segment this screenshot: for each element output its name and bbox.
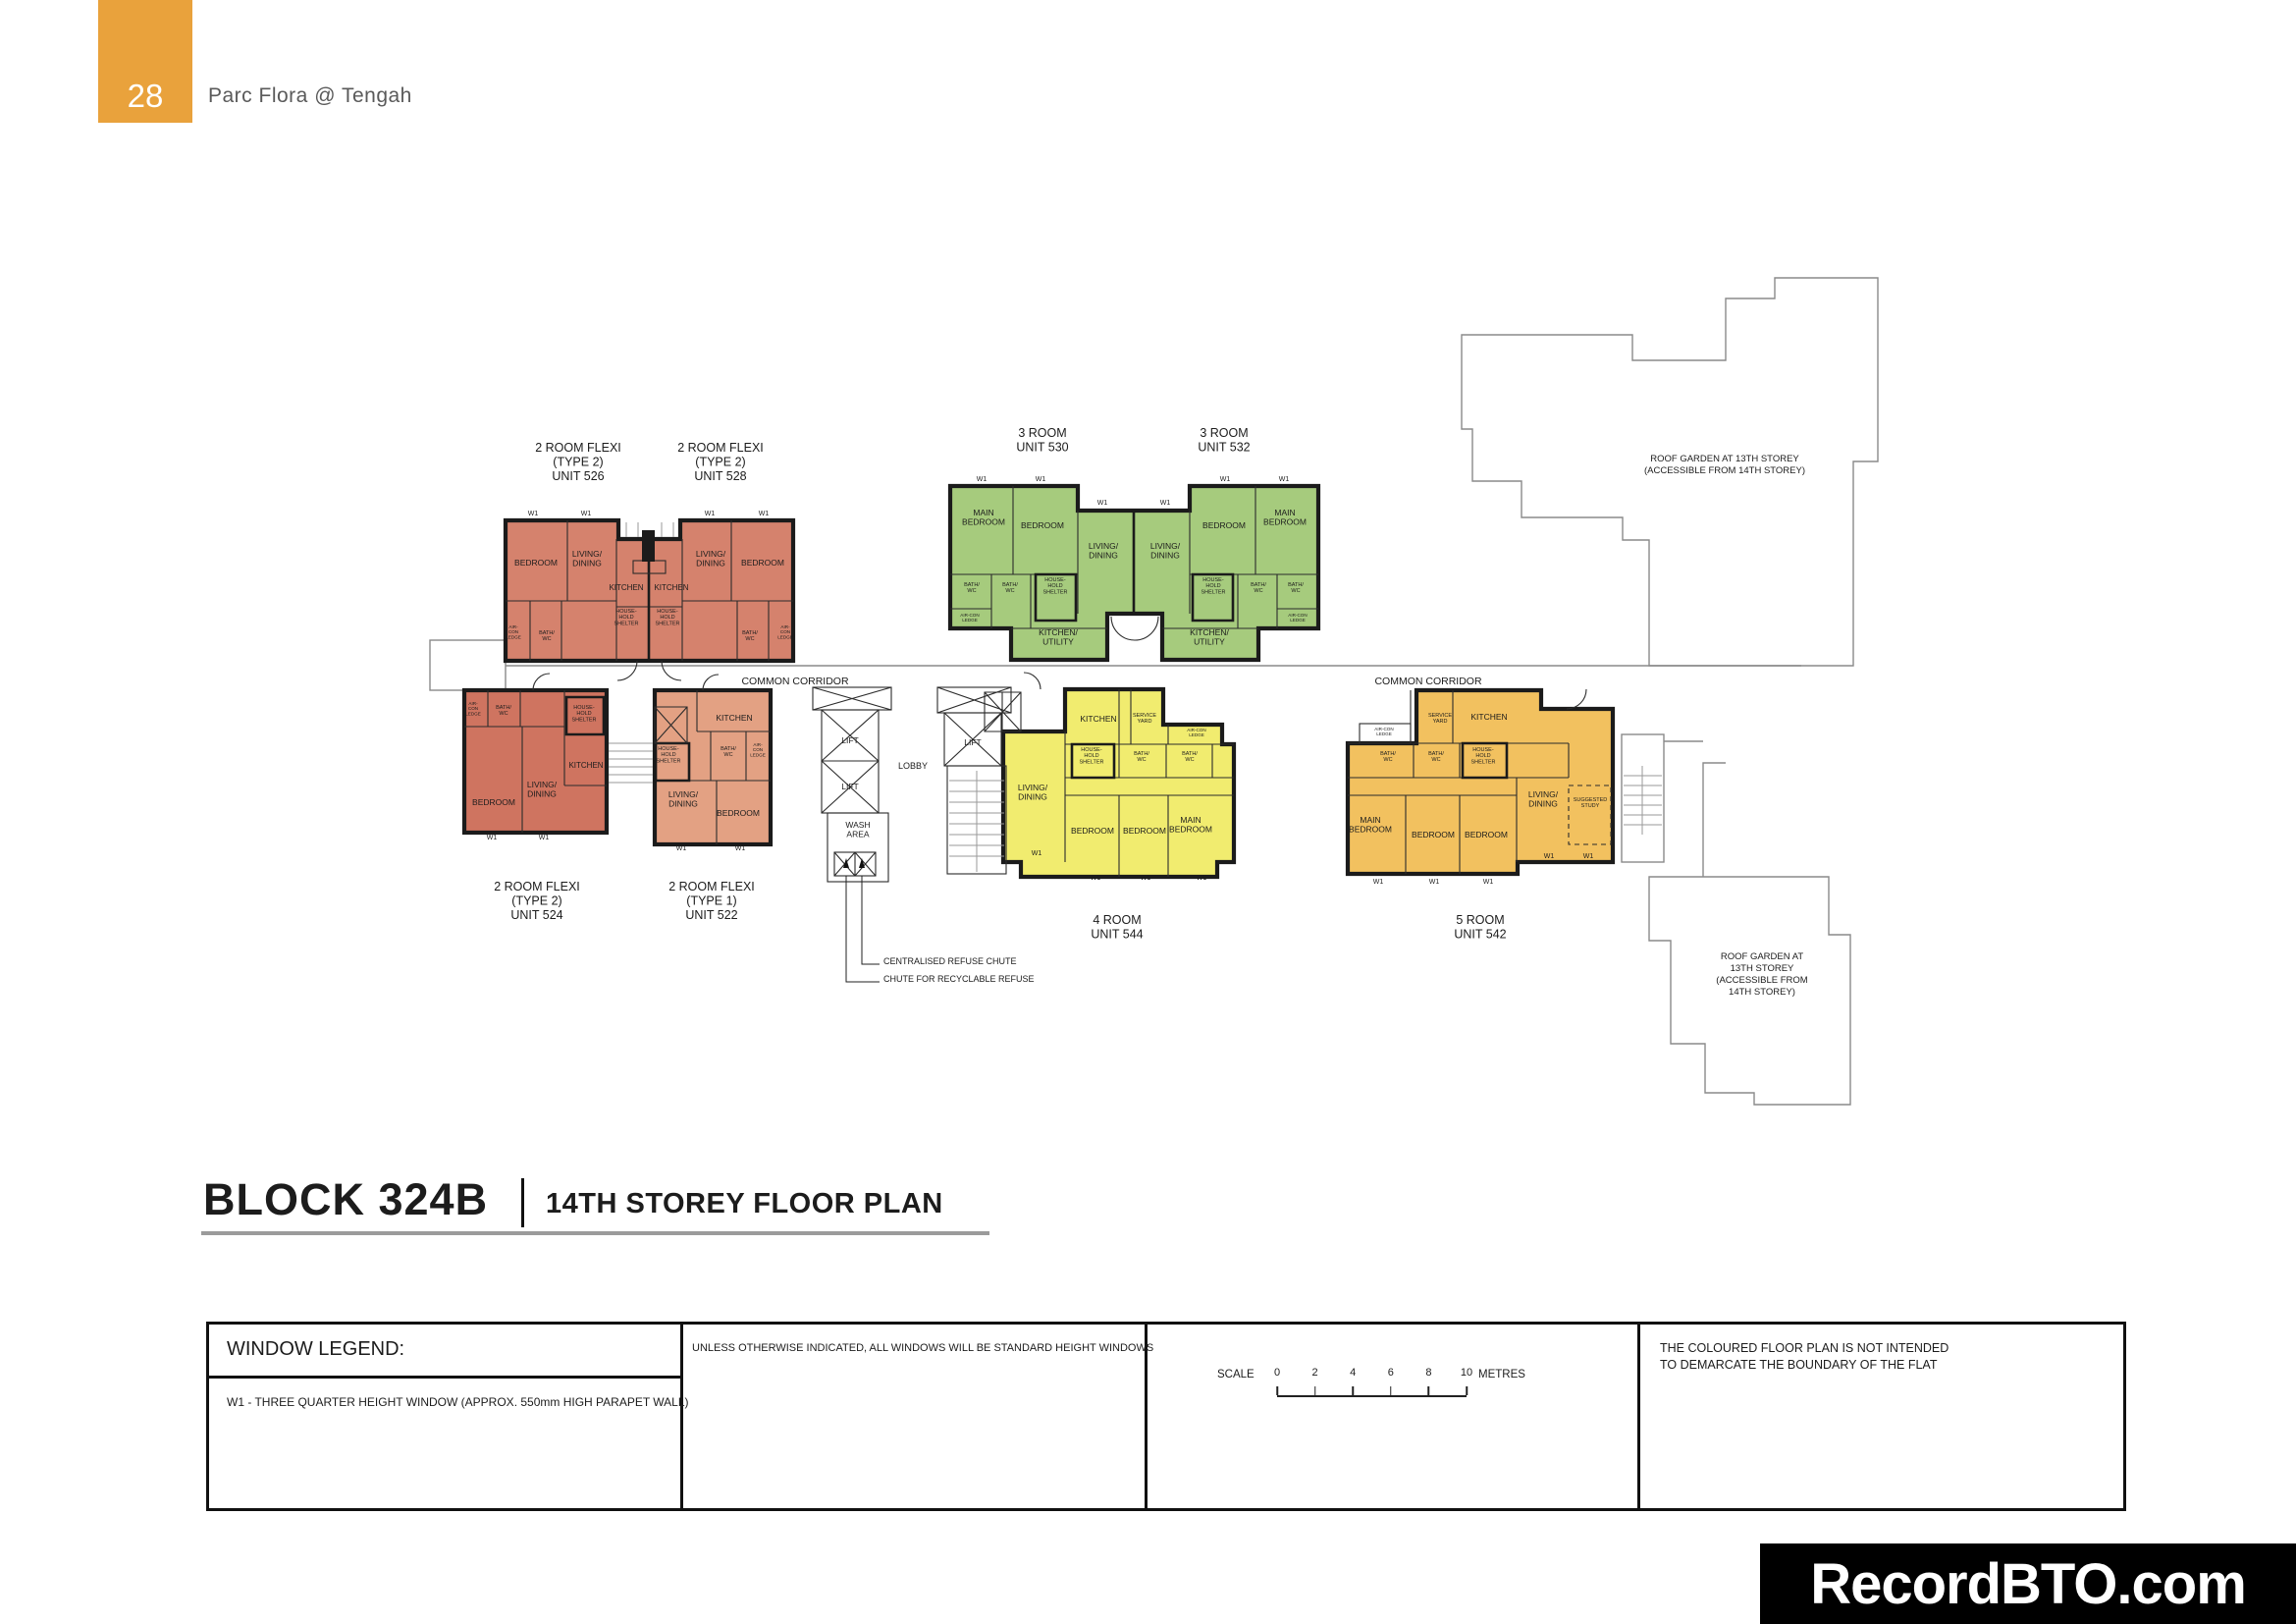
room-label: LIVING/DINING: [1528, 789, 1559, 809]
page-number: 28: [128, 78, 164, 123]
recordbto-logo-text: RecordBTO.com: [1810, 1551, 2246, 1617]
w1-note: W1 - THREE QUARTER HEIGHT WINDOW (APPROX…: [227, 1395, 689, 1409]
window-marker: W1: [1220, 476, 1231, 483]
unit-title: 2 ROOM FLEXI(TYPE 1)UNIT 522: [668, 880, 755, 922]
lift-label: LIFT: [841, 735, 858, 745]
scale-tick-label: 6: [1388, 1367, 1394, 1379]
room-label: KITCHEN: [568, 761, 603, 770]
recordbto-logo[interactable]: RecordBTO.com: [1760, 1543, 2296, 1624]
scale-tick-mark: [1314, 1386, 1316, 1395]
room-label: BATH/WC: [721, 746, 736, 758]
room-label: LIVING/DINING: [696, 549, 726, 568]
room-label: MAINBEDROOM: [962, 508, 1005, 527]
room-label: MAINBEDROOM: [1263, 508, 1307, 527]
room-label: BEDROOM: [1465, 830, 1508, 839]
page-number-badge: 28: [98, 0, 192, 123]
roof-garden-outlines: [1462, 278, 1878, 1105]
unit-title: 2 ROOM FLEXI(TYPE 2)UNIT 524: [494, 880, 580, 922]
lift-label: LIFT: [841, 782, 858, 791]
window-marker: W1: [705, 511, 716, 517]
unit-530-532-block: [950, 486, 1318, 660]
title-divider: [521, 1178, 524, 1227]
boundary-note-line1: THE COLOURED FLOOR PLAN IS NOT INTENDED: [1660, 1340, 1949, 1357]
legend-header-rule: [209, 1376, 680, 1379]
legend-table: WINDOW LEGEND: W1 - THREE QUARTER HEIGHT…: [206, 1322, 2126, 1511]
room-label: AIR-CONLEDGE: [506, 624, 521, 639]
window-marker: W1: [539, 835, 550, 841]
room-label: BEDROOM: [1412, 830, 1455, 839]
unit-title: 3 ROOMUNIT 532: [1198, 426, 1250, 455]
room-label: BATH/WC: [742, 630, 758, 642]
room-label: BEDROOM: [1071, 826, 1114, 836]
window-marker: W1: [528, 511, 539, 517]
room-label: MAINBEDROOM: [1349, 815, 1392, 835]
wash-area-label: WASHAREA: [845, 820, 870, 839]
unit-524-block: [464, 690, 607, 833]
room-label: BEDROOM: [1021, 520, 1064, 530]
window-marker: W1: [1483, 879, 1494, 886]
title-underline: [201, 1231, 989, 1235]
window-marker: W1: [1091, 875, 1101, 882]
window-marker: W1: [759, 511, 770, 517]
block-title: BLOCK 324B: [203, 1174, 488, 1225]
table-divider: [680, 1325, 683, 1508]
room-label: BEDROOM: [1202, 520, 1246, 530]
scale-tick-mark: [1428, 1386, 1430, 1395]
window-marker: W1: [581, 511, 592, 517]
room-label: BEDROOM: [1123, 826, 1166, 836]
unit-542-block: [1348, 690, 1613, 874]
room-label: AIR-CONLEDGE: [465, 701, 481, 716]
scale-tick-mark: [1390, 1386, 1392, 1395]
refuse-chute-label: CHUTE FOR RECYCLABLE REFUSE: [883, 974, 1035, 984]
scale-tick-label: 2: [1312, 1367, 1318, 1379]
window-marker: W1: [1373, 879, 1384, 886]
room-label: KITCHEN/UTILITY: [1039, 627, 1078, 647]
scale-tick-mark: [1466, 1386, 1468, 1395]
window-marker: W1: [1036, 476, 1046, 483]
unit-title: 3 ROOMUNIT 530: [1016, 426, 1068, 455]
unit-526-528-block: [506, 520, 793, 661]
room-label: AIR-CONLEDGE: [1187, 728, 1205, 737]
window-marker: W1: [1279, 476, 1290, 483]
boundary-note: THE COLOURED FLOOR PLAN IS NOT INTENDED …: [1660, 1340, 1949, 1374]
room-label: BATH/WC: [1251, 582, 1266, 594]
room-partitions: [464, 486, 1611, 877]
room-label: BATH/WC: [1134, 751, 1149, 763]
unit-title: 4 ROOMUNIT 544: [1091, 913, 1143, 942]
room-label: BATH/WC: [1288, 582, 1304, 594]
room-label: BATH/WC: [1428, 751, 1444, 763]
unit-title: 2 ROOM FLEXI(TYPE 2)UNIT 526: [535, 441, 621, 483]
room-label: HOUSE-HOLDSHELTER: [656, 609, 680, 626]
room-label: BATH/WC: [539, 630, 555, 642]
lobby-label: LOBBY: [898, 761, 928, 771]
room-label: BEDROOM: [514, 558, 558, 568]
room-label: LIVING/DINING: [572, 549, 603, 568]
room-label: KITCHEN/UTILITY: [1190, 627, 1229, 647]
lift-core: [609, 687, 1664, 982]
window-marker: W1: [1032, 850, 1042, 857]
window-marker: W1: [1097, 500, 1108, 507]
refuse-chute: [834, 852, 876, 876]
scale-tick-label: 0: [1274, 1367, 1280, 1379]
room-label: HOUSE-HOLDSHELTER: [657, 746, 681, 764]
room-label: BATH/WC: [1002, 582, 1018, 594]
room-label: HOUSE-HOLDSHELTER: [1471, 747, 1496, 765]
room-label: KITCHEN: [1470, 712, 1507, 722]
room-label: HOUSE-HOLDSHELTER: [572, 705, 597, 723]
room-label: SERVICEYARD: [1428, 713, 1452, 725]
room-label: HOUSE-HOLDSHELTER: [1080, 747, 1104, 765]
room-label: AIR-CONLEDGE: [1374, 727, 1393, 736]
scale-tick-label: 4: [1350, 1367, 1356, 1379]
room-label: KITCHEN: [609, 583, 643, 592]
staircase: [947, 766, 1006, 874]
scale-tick-label: 8: [1425, 1367, 1431, 1379]
floor-plan-page: 28 Parc Flora @ Tengah: [0, 0, 2296, 1624]
room-label: BATH/WC: [1380, 751, 1396, 763]
window-marker: W1: [977, 476, 988, 483]
door-swings: [533, 617, 1586, 709]
roof-garden-label: ROOF GARDEN AT 13TH STOREY(ACCESSIBLE FR…: [1644, 454, 1805, 476]
side-staircase: [1622, 734, 1664, 862]
room-label: LIVING/DINING: [527, 780, 558, 799]
unit-544-block: [1003, 689, 1234, 877]
scale-tick-mark: [1276, 1386, 1278, 1395]
room-label: KITCHEN: [716, 713, 752, 723]
room-label: BATH/WC: [964, 582, 980, 594]
scale-bar: SCALE 0246810 METRES: [1217, 1367, 1541, 1400]
room-label: HOUSE-HOLDSHELTER: [1201, 577, 1226, 595]
room-label: LIVING/DINING: [1018, 783, 1048, 802]
window-marker: W1: [1197, 875, 1207, 882]
room-label: BEDROOM: [472, 797, 515, 807]
window-marker: W1: [1141, 875, 1151, 882]
room-label: BEDROOM: [717, 808, 760, 818]
corridor-label: COMMON CORRIDOR: [741, 676, 848, 687]
refuse-chute-label: CENTRALISED REFUSE CHUTE: [883, 956, 1017, 966]
scale-base-line: [1277, 1395, 1467, 1397]
corridor-label: COMMON CORRIDOR: [1374, 676, 1481, 687]
roof-garden-label: ROOF GARDEN AT13TH STOREY(ACCESSIBLE FRO…: [1716, 951, 1808, 998]
room-label: LIVING/DINING: [668, 789, 699, 809]
boundary-note-line2: TO DEMARCATE THE BOUNDARY OF THE FLAT: [1660, 1357, 1949, 1374]
room-label: AIR-CONLEDGE: [750, 742, 766, 757]
room-label: KITCHEN: [654, 583, 688, 592]
room-label: SERVICEYARD: [1133, 713, 1156, 725]
scale-tick-mark: [1352, 1386, 1354, 1395]
storey-title: 14TH STOREY FLOOR PLAN: [546, 1188, 943, 1220]
window-marker: W1: [1544, 853, 1555, 860]
window-legend-title: WINDOW LEGEND:: [227, 1338, 404, 1361]
common-corridor: [430, 640, 1801, 690]
window-marker: W1: [1160, 500, 1171, 507]
project-title: Parc Flora @ Tengah: [208, 84, 412, 108]
window-marker: W1: [676, 845, 687, 852]
unit-title: 2 ROOM FLEXI(TYPE 2)UNIT 528: [677, 441, 764, 483]
room-label: KITCHEN: [1080, 714, 1116, 724]
unit-titles-layer: 2 ROOM FLEXI(TYPE 2)UNIT 5262 ROOM FLEXI…: [494, 426, 1506, 942]
room-label: HOUSE-HOLDSHELTER: [614, 609, 639, 626]
wash-area: [828, 813, 888, 882]
room-label: BATH/WC: [1182, 751, 1198, 763]
lift-label: LIFT: [964, 737, 981, 747]
scale-unit: METRES: [1478, 1369, 1525, 1380]
window-marker: W1: [1583, 853, 1594, 860]
room-label: AIR-CONLEDGE: [777, 624, 793, 639]
unit-title: 5 ROOMUNIT 542: [1454, 913, 1506, 942]
window-marker: W1: [487, 835, 498, 841]
room-label: LIVING/DINING: [1089, 541, 1119, 561]
room-label: AIR-CONLEDGE: [1288, 613, 1307, 623]
windows-note: UNLESS OTHERWISE INDICATED, ALL WINDOWS …: [692, 1342, 1153, 1354]
unit-522-block: [655, 690, 771, 844]
scale-ticks: 0246810: [1277, 1367, 1467, 1398]
room-label: BATH/WC: [496, 705, 511, 717]
room-label: SUGGESTEDSTUDY: [1574, 797, 1608, 809]
table-divider: [1637, 1325, 1640, 1508]
scale-label: SCALE: [1217, 1369, 1255, 1380]
window-marker: W1: [735, 845, 746, 852]
scale-tick-label: 10: [1461, 1367, 1472, 1379]
room-label: AIR-CONLEDGE: [960, 613, 979, 623]
room-label: LIVING/DINING: [1150, 541, 1181, 561]
window-marker: W1: [1429, 879, 1440, 886]
room-label: BEDROOM: [741, 558, 784, 568]
room-label: MAINBEDROOM: [1169, 815, 1212, 835]
room-labels-layer: BEDROOMLIVING/DININGKITCHENKITCHENHOUSE-…: [465, 454, 1808, 998]
room-label: HOUSE-HOLDSHELTER: [1043, 577, 1068, 595]
